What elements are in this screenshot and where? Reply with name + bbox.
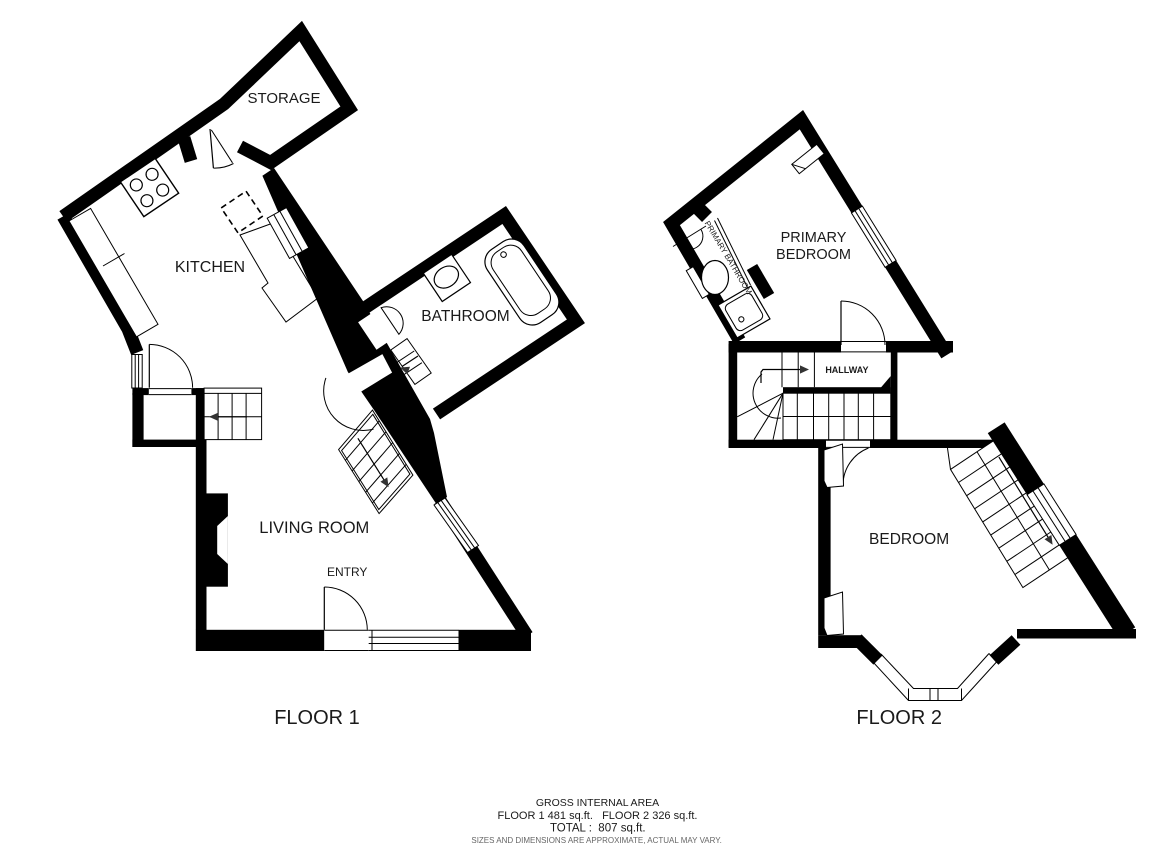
svg-text:TOTAL : 807 sq.ft.: TOTAL : 807 sq.ft. <box>550 823 646 835</box>
svg-text:HALLWAY: HALLWAY <box>825 365 868 375</box>
svg-text:KITCHEN: KITCHEN <box>175 259 245 276</box>
svg-text:FLOOR 2: FLOOR 2 <box>856 707 942 729</box>
svg-text:BEDROOM: BEDROOM <box>776 247 851 263</box>
svg-text:FLOOR 1: FLOOR 1 <box>274 707 360 729</box>
svg-text:GROSS INTERNAL AREA: GROSS INTERNAL AREA <box>536 797 659 809</box>
svg-text:STORAGE: STORAGE <box>247 90 320 107</box>
svg-text:PRIMARY: PRIMARY <box>781 230 847 246</box>
svg-text:SIZES AND DIMENSIONS ARE APPRO: SIZES AND DIMENSIONS ARE APPROXIMATE, AC… <box>471 836 721 845</box>
svg-text:BEDROOM: BEDROOM <box>869 531 949 548</box>
svg-text:BATHROOM: BATHROOM <box>421 308 509 325</box>
svg-text:FLOOR 1 481 sq.ft. FLOOR 2 3: FLOOR 1 481 sq.ft. FLOOR 2 326 sq.ft. <box>498 810 698 822</box>
svg-text:LIVING ROOM: LIVING ROOM <box>259 519 369 537</box>
svg-text:ENTRY: ENTRY <box>327 565 367 579</box>
